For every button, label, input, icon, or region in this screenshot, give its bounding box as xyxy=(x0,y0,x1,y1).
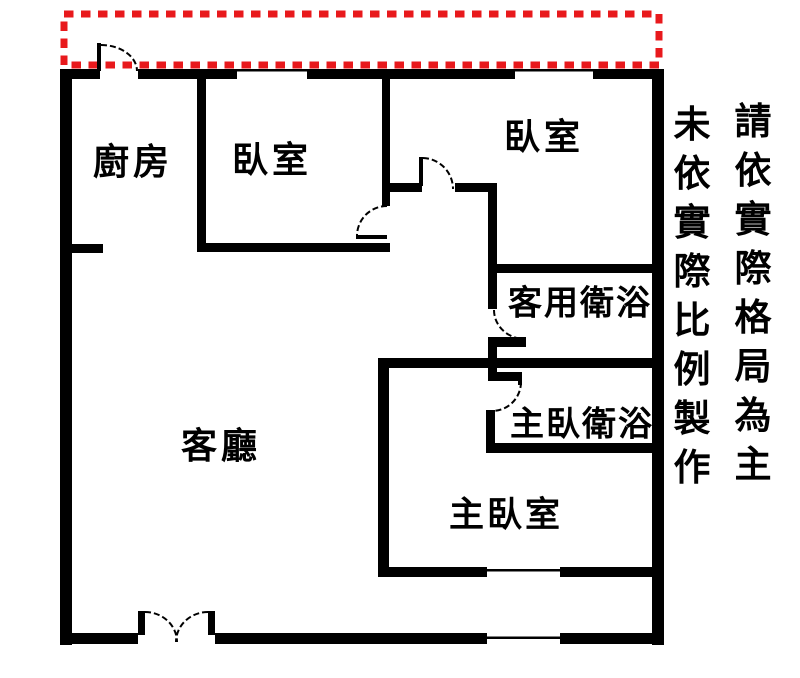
wall-bedroom1-bottom xyxy=(197,243,390,252)
wall-kitchen-bedroom1-divider xyxy=(197,74,206,252)
room-label-bedroom2: 臥室 xyxy=(504,108,584,160)
door-jamb-entrance-left xyxy=(138,611,145,635)
room-label-kitchen: 廚房 xyxy=(93,133,173,185)
floor-plan: 廚房 臥室 臥室 客用衛浴 主臥衛浴 主臥室 客廳 請依實際格局為主 未依實際比… xyxy=(0,0,800,678)
room-label-living-room: 客廳 xyxy=(181,417,261,469)
door-arc-bedroom1 xyxy=(357,206,387,235)
wall-outer-bottom-c xyxy=(560,633,664,644)
wall-master-bedroom-top xyxy=(378,358,664,368)
window-top-bedroom1 xyxy=(237,69,307,72)
wall-master-bedroom-bottom-b xyxy=(560,567,664,577)
wall-outer-top-c xyxy=(307,69,515,79)
door-arc-entrance-right xyxy=(176,612,208,642)
wall-guest-bath-top xyxy=(488,264,664,273)
door-leaf-bedroom1 xyxy=(356,235,387,239)
wall-master-bedroom-left xyxy=(378,358,389,577)
disclaimer-column-right: 請依實際格局為主 xyxy=(730,98,776,490)
door-arc-entrance-left xyxy=(145,612,177,642)
door-arc-bedroom2 xyxy=(423,158,453,189)
wall-outer-bottom-a xyxy=(60,633,138,644)
wall-hallway-top-left xyxy=(386,183,422,192)
wall-outer-bottom-b xyxy=(215,633,487,644)
room-label-master-bathroom: 主臥衛浴 xyxy=(510,397,654,446)
door-leaf-bedroom2 xyxy=(419,157,423,186)
wall-outer-top-b xyxy=(138,69,237,79)
wall-outer-left xyxy=(60,69,72,645)
balcony-dashed-outline xyxy=(64,14,659,65)
wall-outer-right xyxy=(652,69,664,645)
room-label-guest-bathroom: 客用衛浴 xyxy=(508,276,652,325)
wall-master-bath-door-return xyxy=(495,372,522,381)
door-jamb-entrance-right xyxy=(208,611,215,635)
door-leaf-balcony xyxy=(97,43,101,71)
window-top-bedroom2 xyxy=(515,69,593,72)
wall-kitchen-stub xyxy=(60,244,103,253)
disclaimer-column-left: 未依實際比例製作 xyxy=(669,101,715,493)
wall-guest-bath-left-upper xyxy=(488,183,497,309)
room-label-bedroom1: 臥室 xyxy=(232,131,312,183)
wall-master-bedroom-bottom-a xyxy=(378,567,487,577)
window-master-bedroom xyxy=(487,569,560,572)
room-label-master-bedroom: 主臥室 xyxy=(449,487,563,538)
window-rear-wall xyxy=(487,637,560,640)
